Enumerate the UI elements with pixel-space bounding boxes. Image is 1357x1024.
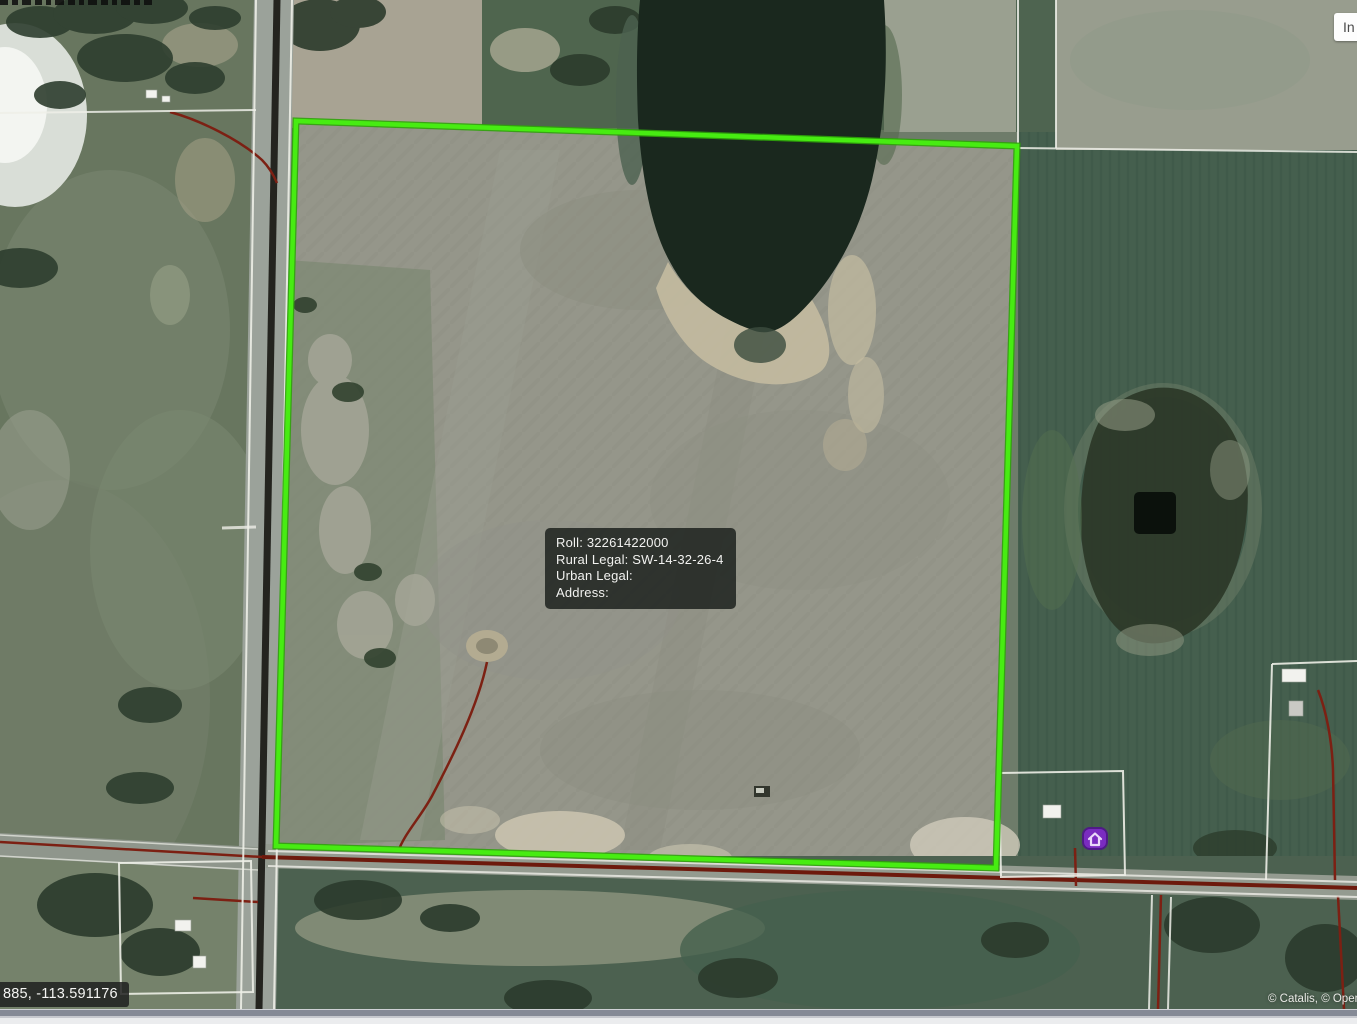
wetland-pond — [1134, 492, 1176, 534]
residence-marker[interactable] — [1083, 828, 1107, 849]
coordinates-readout: 885, -113.591176 — [0, 982, 129, 1007]
tooltip-rural-legal: Rural Legal: SW-14-32-26-4 — [556, 552, 724, 569]
map-application-window: Roll: 32261422000 Rural Legal: SW-14-32-… — [0, 0, 1357, 1024]
info-button[interactable]: In — [1334, 13, 1357, 41]
aerial-imagery — [0, 0, 1357, 1009]
subject-parcel-field — [270, 115, 1030, 875]
map-canvas[interactable]: Roll: 32261422000 Rural Legal: SW-14-32-… — [0, 0, 1357, 1009]
tooltip-urban-legal: Urban Legal: — [556, 568, 724, 585]
driveway-right-farm — [1075, 848, 1076, 886]
tooltip-address: Address: — [556, 585, 724, 602]
map-attribution: © Catalis, © Open — [1268, 993, 1357, 1005]
info-button-label: In — [1343, 19, 1355, 35]
parcel-info-tooltip: Roll: 32261422000 Rural Legal: SW-14-32-… — [545, 528, 736, 609]
tooltip-roll: Roll: 32261422000 — [556, 535, 724, 552]
window-bottom-scrollbar[interactable] — [0, 1009, 1357, 1024]
